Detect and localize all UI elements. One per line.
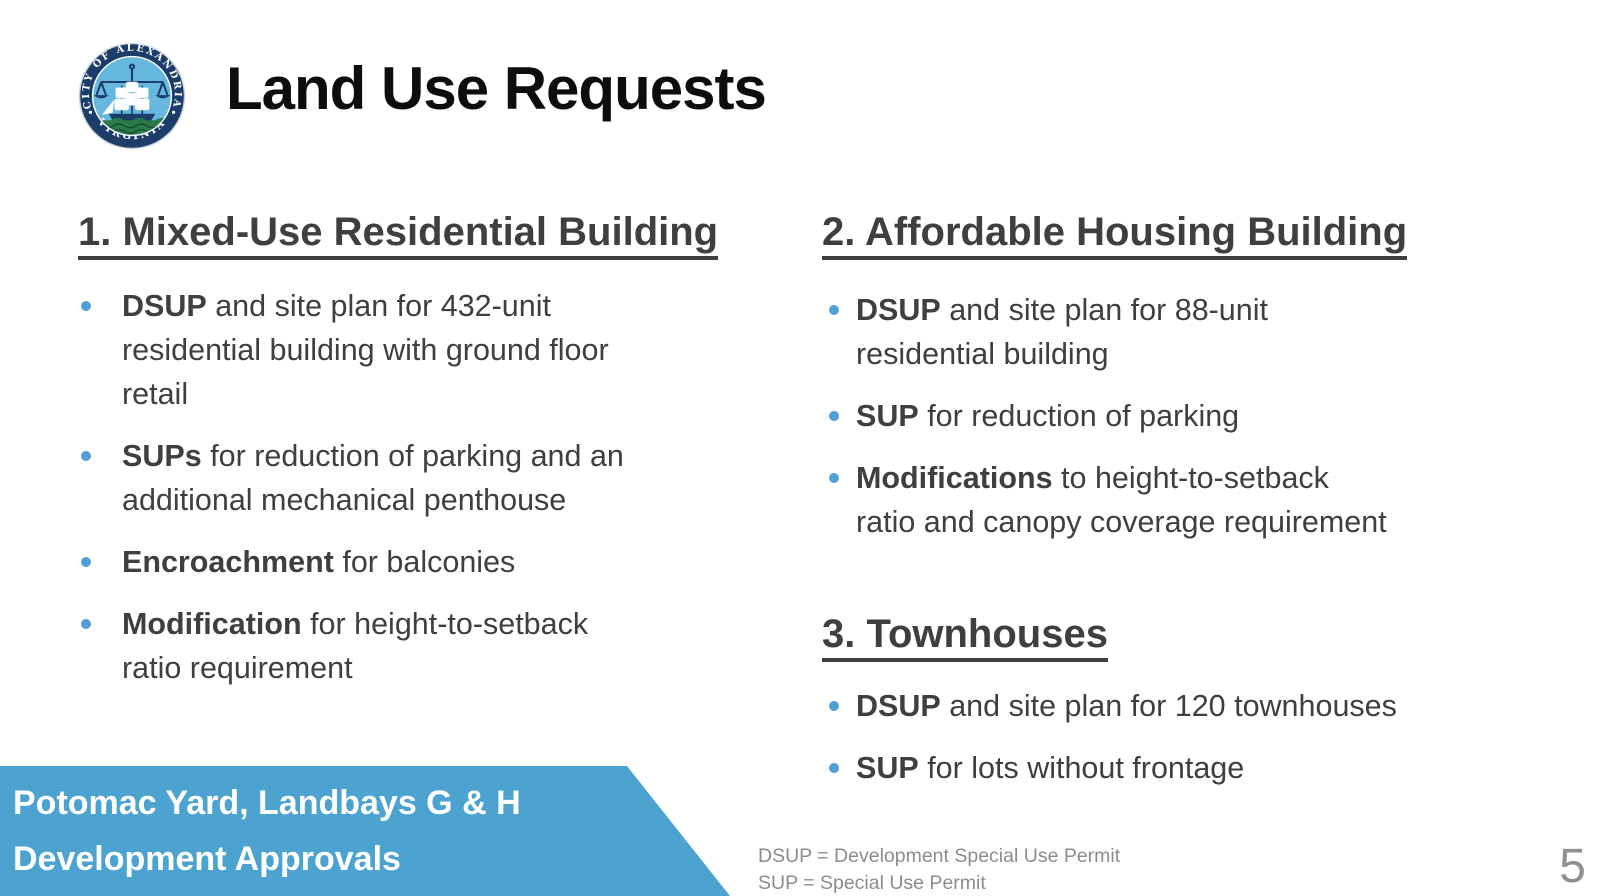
section-mixed-use-residential: 1. Mixed-Use Residential Building DSUP a… (78, 210, 778, 708)
section-heading: 1. Mixed-Use Residential Building (78, 210, 778, 260)
bullet-line: Modification for height-to-setback (122, 602, 778, 646)
bullet-dot (81, 619, 91, 629)
section-heading: 2. Affordable Housing Building (822, 210, 1542, 260)
bullet-line: DSUP and site plan for 432-unit (122, 284, 778, 328)
bullet-line: retail (122, 372, 778, 416)
bullet-line: Modifications to height-to-setback (856, 456, 1542, 500)
bullet-item: SUP for reduction of parking (822, 394, 1542, 438)
bullet-dot (829, 305, 839, 315)
bullet-line: residential building (856, 332, 1542, 376)
bullet-line: DSUP and site plan for 88-unit (856, 288, 1542, 332)
bullet-line: additional mechanical penthouse (122, 478, 778, 522)
city-seal-icon: CITY OF ALEXANDRIA VIRGINIA (76, 40, 188, 152)
legend-line-1: DSUP = Development Special Use Permit (758, 843, 1120, 870)
section-affordable-housing: 2. Affordable Housing Building DSUP and … (822, 210, 1542, 562)
section-heading: 3. Townhouses (822, 612, 1542, 662)
bullet-item: Modification for height-to-setback ratio… (78, 602, 778, 690)
footer-banner: Potomac Yard, Landbays G & H Development… (0, 766, 730, 896)
bullet-dot (829, 763, 839, 773)
banner-line-2: Development Approvals (13, 831, 730, 887)
bullet-line: DSUP and site plan for 120 townhouses (856, 684, 1542, 728)
bullet-line: ratio and canopy coverage requirement (856, 500, 1542, 544)
bullet-line: SUPs for reduction of parking and an (122, 434, 778, 478)
bullet-dot (81, 451, 91, 461)
bullet-item: DSUP and site plan for 432-unit resident… (78, 284, 778, 416)
bullet-line: SUP for reduction of parking (856, 394, 1542, 438)
bullet-line: SUP for lots without frontage (856, 746, 1542, 790)
bullet-line: Encroachment for balconies (122, 540, 778, 584)
bullet-dot (81, 557, 91, 567)
slide-canvas: CITY OF ALEXANDRIA VIRGINIA (0, 0, 1600, 896)
bullet-item: DSUP and site plan for 88-unit residenti… (822, 288, 1542, 376)
bullet-dot (81, 301, 91, 311)
bullet-item: SUP for lots without frontage (822, 746, 1542, 790)
bullet-dot (829, 473, 839, 483)
page-title: Land Use Requests (226, 58, 766, 120)
abbreviation-legend: DSUP = Development Special Use Permit SU… (758, 843, 1120, 896)
bullet-line: ratio requirement (122, 646, 778, 690)
legend-line-2: SUP = Special Use Permit (758, 870, 1120, 896)
bullet-dot (829, 411, 839, 421)
bullet-line: residential building with ground floor (122, 328, 778, 372)
page-number: 5 (1559, 841, 1586, 893)
banner-line-1: Potomac Yard, Landbays G & H (13, 775, 730, 831)
bullet-item: Encroachment for balconies (78, 540, 778, 584)
bullet-item: Modifications to height-to-setback ratio… (822, 456, 1542, 544)
bullet-dot (829, 701, 839, 711)
bullet-item: SUPs for reduction of parking and an add… (78, 434, 778, 522)
bullet-item: DSUP and site plan for 120 townhouses (822, 684, 1542, 728)
section-townhouses: 3. Townhouses DSUP and site plan for 120… (822, 612, 1542, 808)
